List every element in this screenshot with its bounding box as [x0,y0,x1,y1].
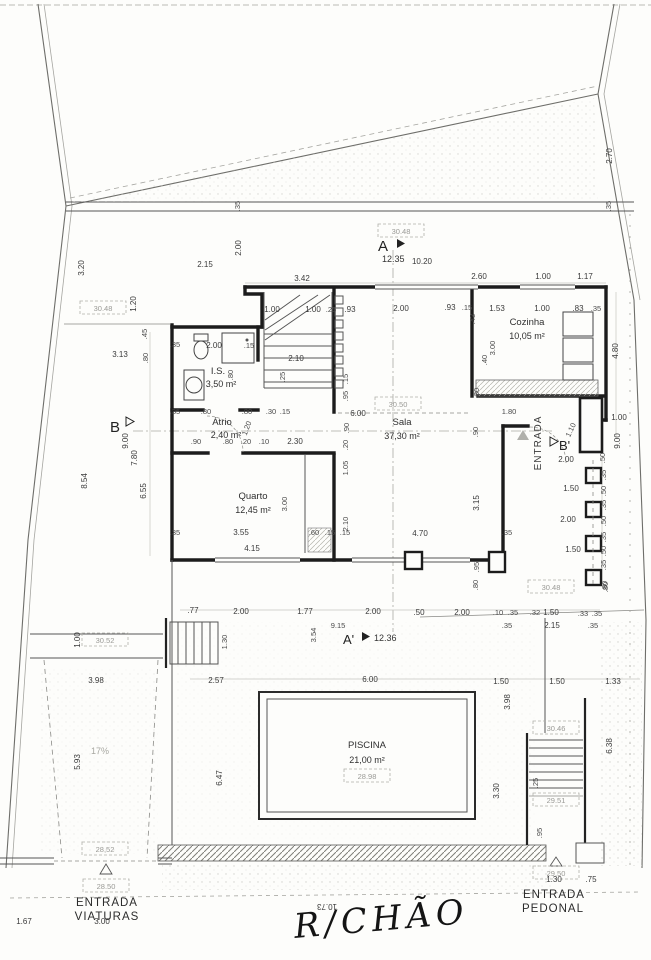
dim-label: .33 [578,609,588,618]
dim-label: .77 [187,606,199,615]
entrada-pedonal-line1: ENTRADA [523,889,585,901]
level-value: 30.48 [94,304,113,313]
dim-label: .45 [140,329,149,339]
dim-label: 1.00 [305,305,321,314]
dim-label: .90 [342,423,351,433]
dim-label: 4.15 [244,544,260,553]
dim-label: .15 [325,528,335,537]
dim-label: .50 [598,453,607,463]
dim-label: .90 [471,427,480,437]
section-marker-b: B [110,419,120,436]
dim-label: .83 [572,304,584,313]
level-value: 30.48 [392,227,411,236]
dim-label: 1.30 [546,875,562,884]
dim-label: 9.00 [613,433,622,449]
kitchen-appliance-2 [563,338,593,362]
section-marker-b-prime: B' [559,438,570,453]
dim-label: 7.80 [130,450,139,466]
dim-label: 2.00 [365,607,381,616]
dim-label: 3.15 [472,495,481,511]
pedonal-porch [576,843,604,863]
entrada-viaturas-line1: ENTRADA [76,897,138,909]
room-area-quarto: 12,45 m² [235,505,271,515]
drawing-title-handwritten: R/CHÃO [291,892,470,947]
dim-label: 2.00 [558,455,574,464]
dim-label: 2.00 [560,515,576,524]
pillar-sala-1 [405,552,422,569]
dim-label: 3.30 [492,783,501,799]
dim-label: .40 [480,355,489,365]
dim-label: 2.70 [605,148,614,164]
pillar-sala-2 [489,552,505,572]
dim-label: .15 [341,374,350,384]
dim-label: 6.38 [605,738,614,754]
dim-label: 1.50 [549,677,565,686]
dim-label: 2.10 [341,517,350,532]
level-badge: 30.48 [80,301,126,314]
dim-label: .75 [585,875,597,884]
section-arrow-a [397,239,405,248]
dim-label: 1.00 [611,413,627,422]
dim-label: .35 [170,407,180,416]
dim-label: .32 [530,608,540,617]
dim-label: 3.42 [294,274,310,283]
room-name-is: I.S. [211,366,225,377]
garden-stipple-top [72,98,598,202]
level-value: 30.52 [96,636,115,645]
toilet-tank [194,334,208,341]
level-value: 30.50 [389,400,408,409]
dim-label: 4.80 [611,343,620,359]
dim-label: .95 [472,562,481,572]
dim-label: .35 [508,608,518,617]
dim-label: 2.00 [234,240,243,256]
dim-label: 3.00 [94,917,110,926]
driveway-stipple [40,668,158,854]
floor-plan-canvas: 30.48 30.48 30.50 30.48 30.52 28,52 28.5… [0,0,651,960]
level-badge: 30.46 [533,721,579,734]
dim-label: 1.80 [502,407,517,416]
dim-label: 1.50 [565,545,581,554]
floor-plan-sheet: 30.48 30.48 30.50 30.48 30.52 28,52 28.5… [0,0,651,960]
section-value-a-prime: 12.36 [374,633,397,643]
dim-label: 1.53 [489,304,505,313]
dim-label: 1.00 [264,305,280,314]
dim-label: 1.67 [16,917,32,926]
dim-label: 2.00 [393,304,409,313]
dim-label: .35 [592,609,602,618]
dim-label: 1.50 [543,608,559,617]
dim-label: .50 [413,608,425,617]
dim-label: .25 [326,305,336,314]
dim-label: .35 [502,528,512,537]
dim-label: .10 [259,437,269,446]
dim-label: .25 [531,778,540,788]
dim-label: 1.05 [341,461,350,476]
dim-label: 1.20 [129,296,138,312]
dim-label: 6.55 [139,483,148,499]
level-badge: 30.48 [528,580,574,593]
room-name-cozinha: Cozinha [510,317,546,328]
dim-label: .35 [599,500,608,510]
level-value: 28,52 [96,845,115,854]
dim-label: 3.00 [280,497,289,512]
dim-label: .15 [244,341,254,350]
entrada-interior-label: ENTRADA [533,416,544,471]
patio-edge-hatch [158,845,546,861]
dim-label: 1.50 [493,677,509,686]
window-top [375,285,478,289]
dim-label: 1.10 [564,421,578,438]
window-bottom-1 [215,558,300,562]
dim-label: 2.60 [471,272,487,281]
dim-label: .93 [344,305,356,314]
dim-label: 2.00 [454,608,470,617]
dim-label: 2.00 [233,607,249,616]
dim-label: .80 [226,370,235,380]
dim-label: .80 [471,580,480,590]
washbasin [186,377,202,393]
dim-label: .30 [266,407,276,416]
dim-label: 3.98 [503,694,512,710]
dim-label: 6.00 [362,675,378,684]
dim-label: 1.33 [605,677,621,686]
dim-label: .35 [170,528,180,537]
dim-label: 2.30 [287,437,303,446]
dim-label: 10.20 [412,257,433,266]
dim-label: 3.13 [112,350,128,359]
dim-label: .35 [591,304,601,313]
dim-label: 5.93 [73,754,82,770]
room-area-sala: 37,30 m² [384,431,420,441]
dim-label: 2.57 [208,676,224,685]
level-value: 30.46 [547,724,566,733]
dim-label: 2.10 [288,354,304,363]
dim-label: .35 [599,470,608,480]
dim-label: 2.15 [197,260,213,269]
dim-label: .80 [141,353,150,363]
room-name-sala: Sala [392,417,412,428]
dim-label: 10.73 [316,902,337,911]
dim-label: .35 [502,621,512,630]
room-name-quarto: Quarto [238,491,267,502]
section-value-a: 12.35 [382,254,405,264]
dim-label: 6.00 [350,409,366,418]
dim-label: 1.00 [535,272,551,281]
dim-label: 1.20 [240,420,253,437]
level-badge: 30.50 [375,397,421,410]
level-badge: 30.52 [82,633,128,646]
level-value: 29.51 [547,796,566,805]
dim-label: 3.98 [88,676,104,685]
dim-label: .15 [280,407,290,416]
kitchen-appliance-3 [563,364,593,380]
entrance-porch-wall [580,398,602,452]
level-value: 30.48 [542,583,561,592]
dim-label: .35 [604,201,613,211]
room-area-cozinha: 10,05 m² [509,331,545,341]
dim-label: 2.00 [206,341,222,350]
dim-label: 1.77 [297,607,313,616]
dim-label: .60 [309,528,319,537]
dim-label: .35 [588,621,598,630]
level-value: 28.50 [97,882,116,891]
kitchen-counter [476,380,598,396]
room-area-piscina: 21,00 m² [349,755,385,765]
dim-label: .90 [191,437,201,446]
section-marker-a: A [378,238,388,255]
level-badge: 29.51 [533,793,579,806]
dim-label: 3.20 [77,260,86,276]
dim-label: .80 [601,582,610,592]
dim-label: 6.47 [215,770,224,786]
garden-stipple-bottom [162,864,552,890]
dim-label: .20 [241,437,251,446]
entrada-pedonal-line2: PEDONAL [522,903,584,915]
dim-label: 3.00 [488,341,497,356]
dim-label: 1.30 [220,635,229,650]
level-badge: 30.48 [378,224,424,237]
dim-label: 9.00 [121,433,130,449]
dim-label: 1.50 [563,484,579,493]
dim-label: 8.54 [80,473,89,489]
dim-label: 4.70 [412,529,428,538]
ramp-slope-label: 17% [91,746,109,756]
dim-label: 3.54 [309,628,318,643]
dim-label: .20 [341,440,350,450]
dim-label: 1.17 [577,272,593,281]
dim-label: .80 [223,437,233,446]
viaturas-gate-mark [100,864,112,874]
room-name-atrio: Átrio [212,417,232,428]
kitchen-appliance-1 [563,312,593,336]
wall-top-left-corner [245,287,262,327]
dim-label: .50 [599,486,608,496]
section-arrow-b-prime [550,437,558,446]
level-value: 28.98 [358,772,377,781]
section-marker-a-prime: A' [343,632,354,647]
dim-label: .80 [201,407,211,416]
dim-label: 2.15 [544,621,560,630]
dim-label: .10 [493,608,503,617]
dim-label: 3.55 [233,528,249,537]
section-arrow-b [126,417,134,426]
dim-label: .80 [242,407,252,416]
dim-label: .35 [170,340,180,349]
dim-label: .25 [278,372,287,382]
dim-label: .35 [599,532,608,542]
dim-label: .93 [444,303,456,312]
dim-label: .35 [599,560,608,570]
entrance-arrow [517,430,529,440]
dim-label: .95 [535,828,544,838]
dim-label: .50 [599,546,608,556]
dim-label: 9.15 [331,621,346,630]
dim-label: .95 [341,391,350,401]
dim-label: .43 [468,314,477,324]
dim-label: .50 [599,516,608,526]
level-badge: 28.50 [83,879,129,892]
dim-label: .35 [233,201,242,211]
dim-label: 1.00 [534,304,550,313]
dim-label: .30 [472,388,481,398]
room-name-piscina: PISCINA [348,740,387,751]
dim-label: .15 [462,303,472,312]
dim-label: 1.00 [73,632,82,648]
window-kitchen [520,285,575,289]
